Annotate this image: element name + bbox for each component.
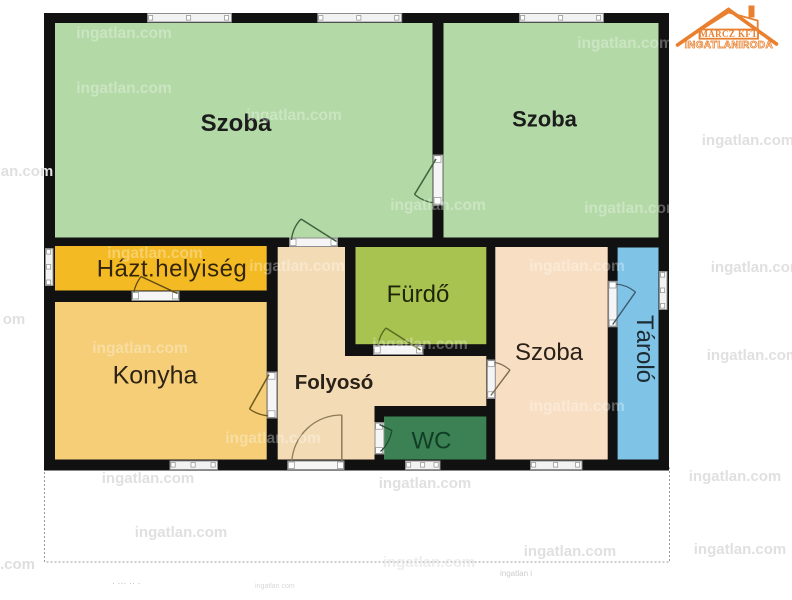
svg-text:ingatlan.com: ingatlan.com: [711, 259, 792, 276]
svg-text:ingatlan i: ingatlan i: [500, 569, 532, 578]
svg-text:ingatlan.com: ingatlan.com: [76, 80, 172, 97]
svg-text:ingatlan.com: ingatlan.com: [135, 524, 228, 541]
svg-text:.com: .com: [0, 556, 35, 573]
svg-text:· ··· ·· ·: · ··· ·· ·: [112, 578, 140, 588]
svg-text:ingatlan.com: ingatlan.com: [383, 554, 476, 571]
svg-text:ingatlan.com: ingatlan.com: [524, 543, 617, 560]
svg-text:ingatlan com: ingatlan com: [255, 583, 295, 590]
svg-text:ingatlan.com: ingatlan.com: [707, 347, 792, 364]
svg-text:ingatlan.com: ingatlan.com: [529, 398, 625, 415]
svg-text:WC: WC: [412, 428, 452, 455]
svg-text:ingatlan.com: ingatlan.com: [379, 475, 472, 492]
svg-text:ingatlan.com: ingatlan.com: [577, 35, 673, 52]
svg-text:Szoba: Szoba: [515, 339, 584, 366]
svg-text:ingatlan.com: ingatlan.com: [529, 258, 625, 275]
svg-text:ingatlan.com: ingatlan.com: [107, 245, 203, 262]
svg-text:ingatlan.com: ingatlan.com: [249, 258, 345, 275]
svg-text:INGATLANIRODA: INGATLANIRODA: [685, 40, 773, 51]
svg-text:om: om: [3, 311, 26, 328]
svg-text:ingatlan.com: ingatlan.com: [584, 200, 680, 217]
svg-text:Fürdő: Fürdő: [387, 281, 450, 308]
svg-text:ingatlan.com: ingatlan.com: [102, 470, 195, 487]
svg-text:Szoba: Szoba: [512, 107, 578, 132]
svg-text:Folyosó: Folyosó: [295, 371, 374, 394]
svg-text:MÁRCZ KFT: MÁRCZ KFT: [699, 29, 757, 39]
svg-text:ingatlan.com: ingatlan.com: [390, 197, 486, 214]
svg-text:ingatlan.com: ingatlan.com: [694, 541, 787, 558]
svg-text:ingatlan.com: ingatlan.com: [702, 132, 792, 149]
svg-text:ingatlan.com: ingatlan.com: [76, 25, 172, 42]
svg-text:ingatlan.com: ingatlan.com: [92, 340, 188, 357]
svg-text:ingatlan.com: ingatlan.com: [689, 468, 782, 485]
svg-text:ingatlan.com: ingatlan.com: [225, 430, 321, 447]
svg-text:Tároló: Tároló: [631, 315, 658, 383]
svg-text:an.com: an.com: [1, 163, 54, 180]
svg-text:Konyha: Konyha: [113, 362, 198, 390]
svg-text:ingatlan.com: ingatlan.com: [372, 336, 468, 353]
svg-text:ingatlan.com: ingatlan.com: [246, 107, 342, 124]
